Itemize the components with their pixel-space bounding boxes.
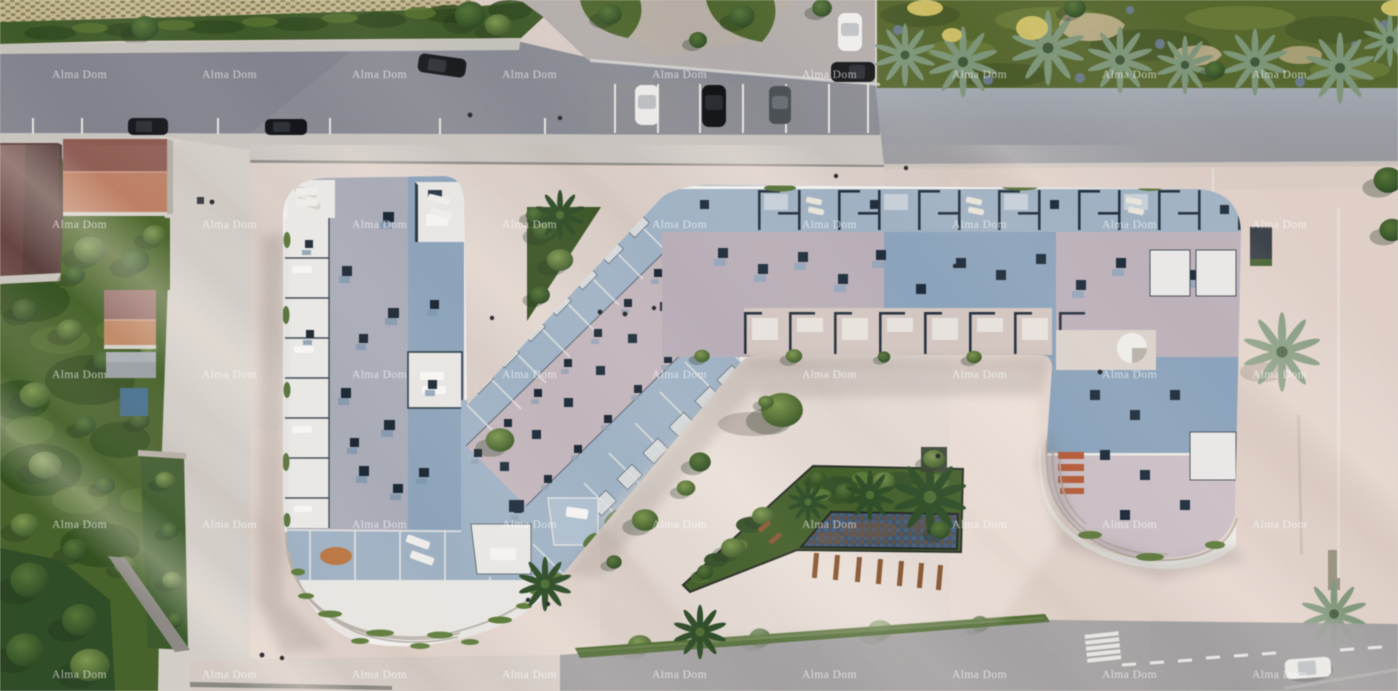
- svg-text:Alma Dom: Alma Dom: [202, 669, 257, 681]
- svg-text:Alma Dom: Alma Dom: [202, 219, 257, 231]
- svg-text:Alma Dom: Alma Dom: [1252, 369, 1307, 381]
- svg-text:Alma Dom: Alma Dom: [352, 219, 407, 231]
- svg-text:Alma Dom: Alma Dom: [352, 69, 407, 81]
- svg-text:Alma Dom: Alma Dom: [802, 369, 857, 381]
- svg-text:Alma Dom: Alma Dom: [952, 219, 1007, 231]
- svg-text:Alma Dom: Alma Dom: [952, 519, 1007, 531]
- svg-text:Alma Dom: Alma Dom: [652, 369, 707, 381]
- svg-text:Alma Dom: Alma Dom: [352, 519, 407, 531]
- svg-text:Alma Dom: Alma Dom: [1102, 669, 1157, 681]
- svg-text:Alma Dom: Alma Dom: [52, 69, 107, 81]
- svg-text:Alma Dom: Alma Dom: [502, 69, 557, 81]
- svg-text:Alma Dom: Alma Dom: [1102, 369, 1157, 381]
- svg-text:Alma Dom: Alma Dom: [652, 519, 707, 531]
- svg-text:Alma Dom: Alma Dom: [202, 519, 257, 531]
- svg-text:Alma Dom: Alma Dom: [1252, 669, 1307, 681]
- svg-text:Alma Dom: Alma Dom: [802, 519, 857, 531]
- svg-text:Alma Dom: Alma Dom: [1252, 69, 1307, 81]
- svg-text:Alma Dom: Alma Dom: [52, 519, 107, 531]
- svg-text:Alma Dom: Alma Dom: [802, 669, 857, 681]
- svg-text:Alma Dom: Alma Dom: [802, 219, 857, 231]
- svg-text:Alma Dom: Alma Dom: [1102, 69, 1157, 81]
- svg-text:Alma Dom: Alma Dom: [52, 219, 107, 231]
- svg-text:Alma Dom: Alma Dom: [802, 69, 857, 81]
- svg-text:Alma Dom: Alma Dom: [952, 69, 1007, 81]
- svg-text:Alma Dom: Alma Dom: [502, 219, 557, 231]
- svg-text:Alma Dom: Alma Dom: [1252, 519, 1307, 531]
- svg-text:Alma Dom: Alma Dom: [652, 69, 707, 81]
- svg-text:Alma Dom: Alma Dom: [352, 669, 407, 681]
- svg-text:Alma Dom: Alma Dom: [502, 519, 557, 531]
- svg-text:Alma Dom: Alma Dom: [1102, 519, 1157, 531]
- svg-text:Alma Dom: Alma Dom: [202, 369, 257, 381]
- svg-text:Alma Dom: Alma Dom: [652, 669, 707, 681]
- svg-text:Alma Dom: Alma Dom: [52, 369, 107, 381]
- svg-text:Alma Dom: Alma Dom: [502, 669, 557, 681]
- svg-text:Alma Dom: Alma Dom: [352, 369, 407, 381]
- svg-text:Alma Dom: Alma Dom: [652, 219, 707, 231]
- svg-text:Alma Dom: Alma Dom: [952, 669, 1007, 681]
- svg-text:Alma Dom: Alma Dom: [952, 369, 1007, 381]
- svg-text:Alma Dom: Alma Dom: [1252, 219, 1307, 231]
- svg-text:Alma Dom: Alma Dom: [52, 669, 107, 681]
- svg-text:Alma Dom: Alma Dom: [502, 369, 557, 381]
- svg-text:Alma Dom: Alma Dom: [1102, 219, 1157, 231]
- svg-text:Alma Dom: Alma Dom: [202, 69, 257, 81]
